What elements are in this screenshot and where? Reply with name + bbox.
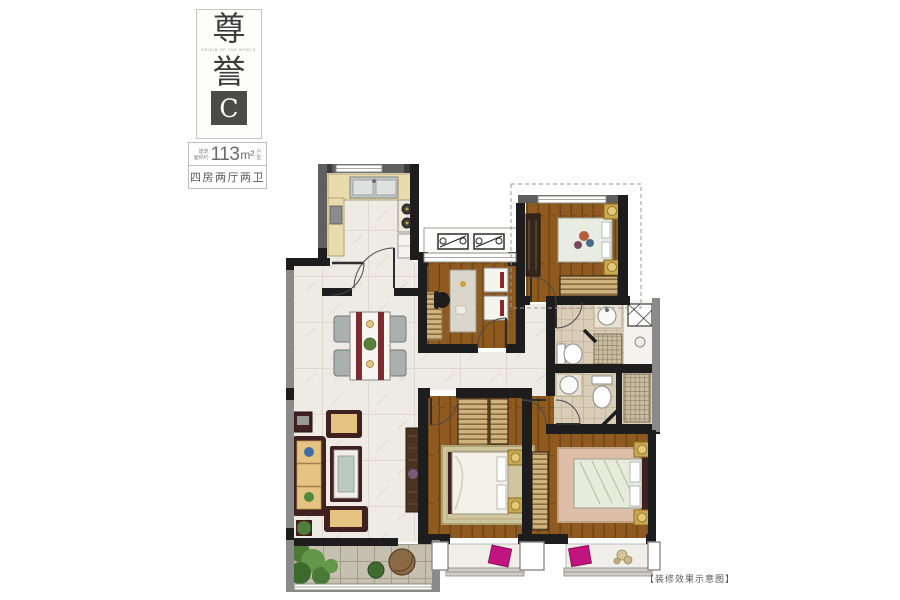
floor-plant xyxy=(296,520,312,536)
floorplan-page: 尊 ORIGIN OF THE WORLD 誉 C 建筑 面积约 113 m² … xyxy=(0,0,900,600)
study-window xyxy=(424,253,516,262)
desk xyxy=(450,270,476,332)
armchair-top xyxy=(326,410,362,438)
nightstand xyxy=(508,450,523,465)
title-block: 尊 ORIGIN OF THE WORLD 誉 C xyxy=(196,9,262,139)
unit-type-badge: C xyxy=(211,91,247,125)
washer xyxy=(628,304,652,326)
ac-unit-2 xyxy=(474,234,504,249)
ac-unit-1 xyxy=(438,234,468,249)
kitchen-sink xyxy=(350,177,398,198)
toilet xyxy=(557,344,582,364)
tv-console xyxy=(406,428,420,512)
coffee-table xyxy=(330,446,362,502)
disclaimer-note: 【装修效果示意图】 xyxy=(645,572,735,585)
brand-character-2: 誉 xyxy=(213,55,246,89)
layout-text: 四房两厅两卫 xyxy=(189,166,266,188)
brand-character-1: 尊 xyxy=(213,12,246,46)
nightstand xyxy=(634,442,650,457)
magenta-pillow xyxy=(488,545,511,567)
wardrobe xyxy=(560,276,618,296)
table-plant xyxy=(364,338,376,350)
shower xyxy=(624,374,650,422)
bed3 xyxy=(558,218,612,262)
nightstand xyxy=(508,498,523,513)
dresser xyxy=(526,214,540,276)
nightstand xyxy=(604,204,620,219)
toilet xyxy=(592,376,612,408)
balcony-railing xyxy=(294,584,432,590)
kitchen-window xyxy=(336,165,382,172)
armchair-bottom xyxy=(324,506,368,532)
kitchen-appliance xyxy=(330,206,342,224)
bay-seat xyxy=(448,544,522,569)
unit-info-box: 建筑 面积约 113 m² 户 型 四房两厅两卫 xyxy=(188,142,267,189)
wardrobe xyxy=(532,452,548,530)
sink xyxy=(560,376,578,394)
bay-windows xyxy=(446,544,652,576)
master-bed xyxy=(574,457,648,510)
area-value: 113 xyxy=(211,145,240,164)
sofa xyxy=(292,436,326,516)
brand-subtext: ORIGIN OF THE WORLD xyxy=(201,47,256,52)
magenta-pillow xyxy=(569,545,592,566)
wardrobe xyxy=(490,398,508,444)
bedroom3-window xyxy=(538,196,606,203)
floor-plan xyxy=(0,0,900,600)
balcony-plant-pot xyxy=(368,562,384,578)
bed2 xyxy=(448,452,508,514)
area-label: 建筑 面积约 xyxy=(194,149,209,161)
shower xyxy=(594,334,622,364)
nightstand xyxy=(604,260,620,275)
ac-ledge xyxy=(424,228,518,255)
area-row: 建筑 面积约 113 m² 户 型 xyxy=(189,143,266,166)
nightstand xyxy=(634,510,650,525)
wardrobe xyxy=(458,398,488,448)
area-suffix: 户 型 xyxy=(256,149,261,161)
bay-sills xyxy=(446,568,652,576)
area-unit: m² xyxy=(240,149,254,161)
